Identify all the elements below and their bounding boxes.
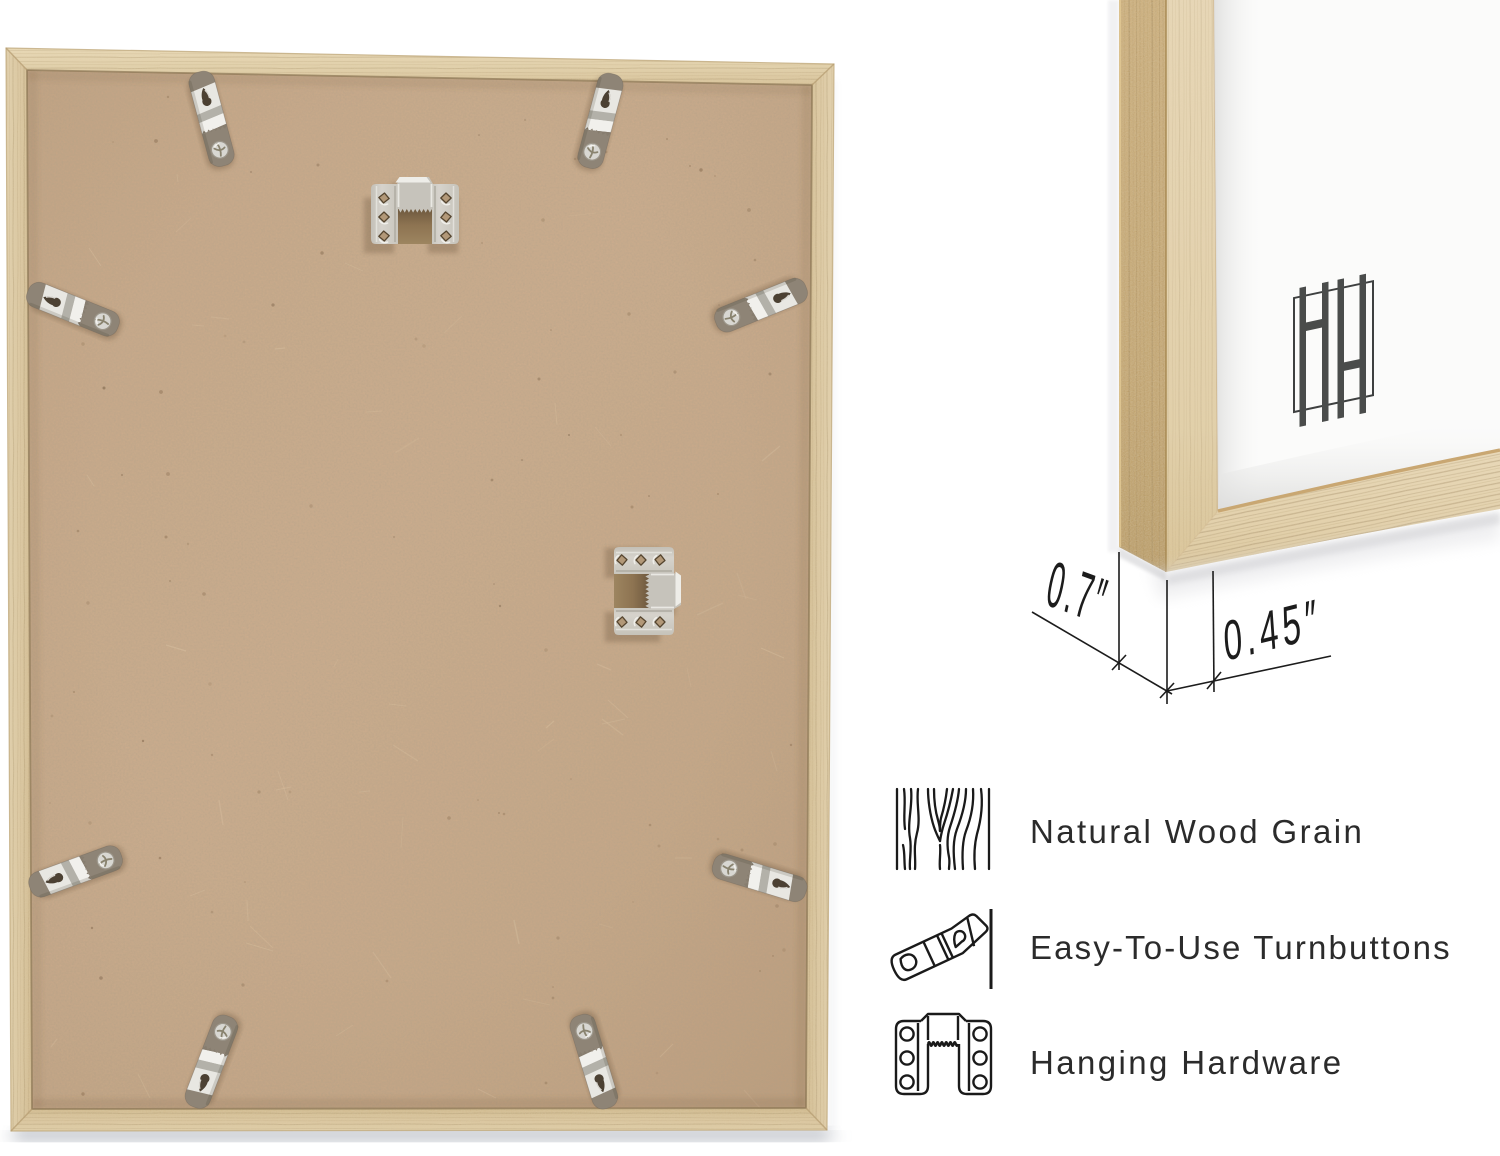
svg-text:Natural Wood Grain: Natural Wood Grain — [1030, 813, 1364, 850]
svg-text:Hanging Hardware: Hanging Hardware — [1030, 1044, 1344, 1081]
svg-text:Easy-To-Use Turnbuttons: Easy-To-Use Turnbuttons — [1030, 929, 1452, 966]
